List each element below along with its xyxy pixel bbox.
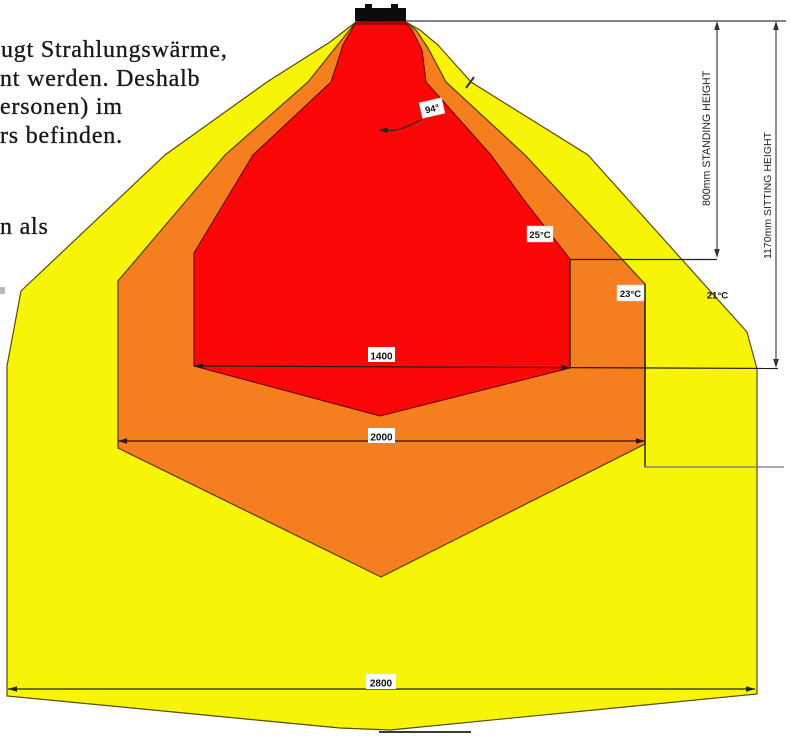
svg-text:ugt Strahlungswärme,: ugt Strahlungswärme,	[1, 37, 228, 63]
svg-text:23°C: 23°C	[620, 289, 641, 300]
svg-text:1400: 1400	[370, 352, 393, 363]
svg-text:2800: 2800	[370, 679, 393, 690]
svg-text:nt werden. Deshalb: nt werden. Deshalb	[0, 66, 200, 92]
svg-text:800mm STANDING HEIGHT: 800mm STANDING HEIGHT	[701, 70, 713, 206]
svg-text:1170mm SITTING HEIGHT: 1170mm SITTING HEIGHT	[762, 131, 774, 259]
svg-text:ersonen) im: ersonen) im	[0, 94, 123, 120]
svg-text:25°C: 25°C	[529, 230, 550, 241]
svg-text:21°C: 21°C	[707, 291, 728, 302]
svg-text:n als: n als	[0, 214, 49, 240]
svg-text:rs befinden.: rs befinden.	[0, 123, 123, 149]
svg-text:2000: 2000	[370, 433, 393, 444]
